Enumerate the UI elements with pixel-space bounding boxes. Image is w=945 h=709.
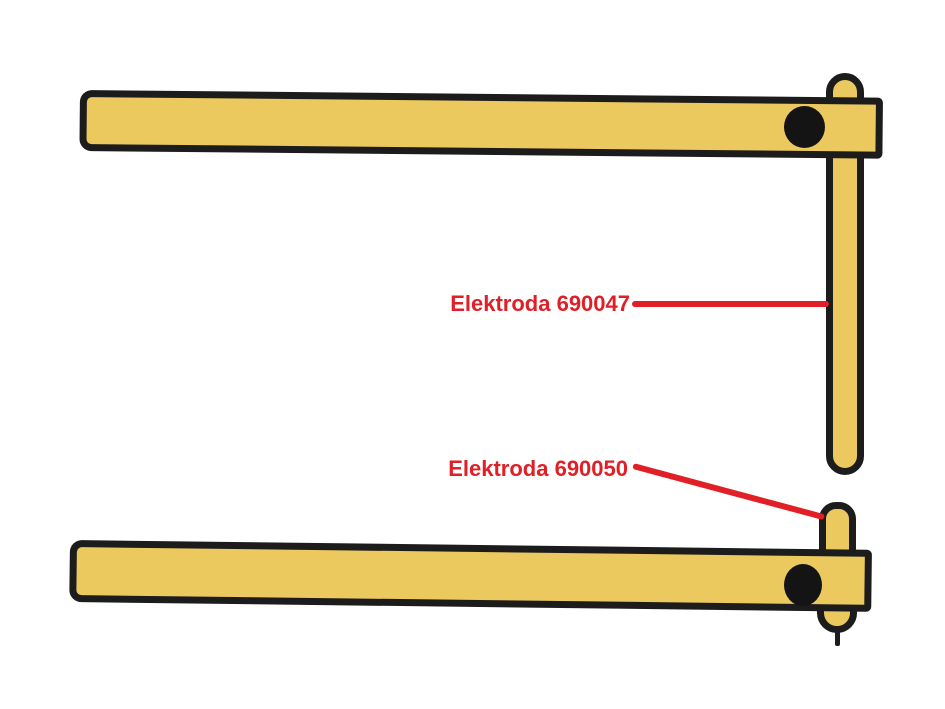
label-electrode-690047: Elektroda 690047 — [450, 293, 630, 315]
lower-arm-pivot-hole — [784, 564, 822, 606]
spot-welder-electrodes-diagram: Elektroda 690047 Elektroda 690050 — [0, 0, 945, 709]
upper-arm-pivot-hole — [784, 106, 825, 148]
leader-line-690047 — [632, 301, 829, 307]
leader-line-690050 — [632, 463, 825, 520]
upper-arm-shape — [79, 90, 883, 159]
electrode-690050-tip-mark — [835, 630, 840, 646]
label-electrode-690050: Elektroda 690050 — [448, 458, 628, 480]
lower-arm-shape — [69, 540, 872, 612]
